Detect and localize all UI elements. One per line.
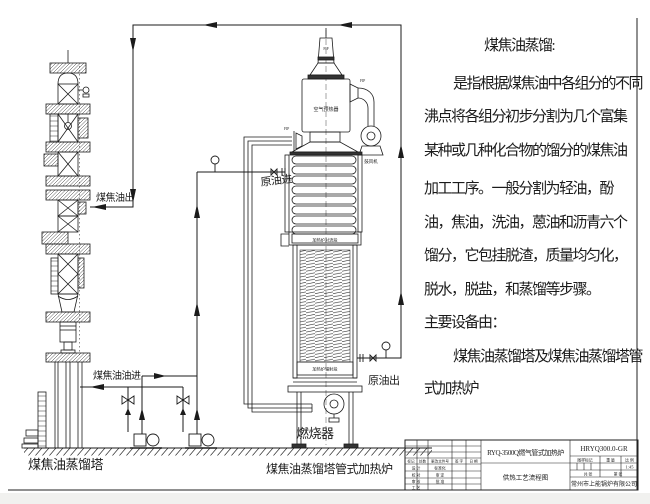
- description-line: 式加热炉: [424, 380, 479, 397]
- description-line: 馏分，它包挂脱渣，质量均匀化，: [424, 246, 627, 264]
- pump-2: [185, 434, 217, 448]
- tower-ladder: [38, 392, 46, 448]
- description-title: 煤焦油蒸馏:: [484, 37, 555, 54]
- tb-verify: 审 定: [436, 473, 445, 478]
- tar-pumps: [130, 434, 217, 448]
- tb-standard: 标准化: [434, 466, 446, 471]
- pressure-gauge-icon: [382, 342, 390, 350]
- coal-tar-in-label: 煤焦油油进: [93, 369, 141, 382]
- tower-name-label: 煤焦油蒸馏塔: [28, 457, 104, 472]
- burner-assembly: [324, 394, 344, 422]
- tb-weight-header: 重 量: [606, 457, 615, 462]
- tb-check: 校 对: [412, 473, 421, 478]
- coal-tar-out-label: 煤焦油出: [96, 191, 134, 204]
- ground-line: [24, 448, 432, 456]
- tb-sheet-name: 供热工艺流程图: [503, 473, 549, 482]
- description-line: 脱水，脱盐，和蒸馏等步骤。: [424, 280, 600, 298]
- tb-rev-sign: 签 字: [455, 459, 463, 464]
- tb-company-name: 常州市上能锅炉有限公司: [571, 480, 637, 488]
- process-flow-diagram: 煤焦油出 煤焦油油进 原油进 原油出 燃烧器 煤焦油蒸馏塔 煤焦油蒸馏塔管式加热…: [0, 0, 650, 504]
- instrument-tag: FIP: [323, 47, 328, 51]
- distillation-tower: [22, 50, 90, 448]
- tb-sheet-number: 第 张: [614, 471, 623, 476]
- description-line: 煤焦油蒸馏塔及煤焦油蒸馏塔管: [453, 348, 644, 365]
- blower: [359, 126, 383, 155]
- convection-band-label: 加热炉对流段: [312, 237, 338, 244]
- description-line: 是指根据煤焦油中各组分的不同: [453, 75, 643, 92]
- convection-section: [285, 155, 362, 234]
- furnace-name-label: 煤焦油蒸馏塔管式加热炉: [266, 461, 393, 476]
- tb-rev-date: 日 期: [469, 459, 477, 464]
- tb-scale-header: 比 例: [625, 457, 634, 462]
- tower-skirt-legs: [55, 362, 82, 448]
- tb-approve: 批 准: [436, 479, 445, 484]
- page-bottom-margin: [0, 493, 650, 504]
- tb-stamp-header: 图样标记: [577, 457, 592, 462]
- tb-rev-doc: 更改文件号: [431, 459, 449, 464]
- blower-label: 鼓风机: [364, 158, 378, 165]
- burner-label: 燃烧器: [296, 426, 334, 441]
- description-line: 某种或几种化合物的馏分的煤焦油: [424, 142, 627, 159]
- pressure-gauge-icon: [211, 156, 219, 164]
- tb-rev-mark: 标记: [407, 459, 415, 464]
- tb-scale-value: 1:45: [625, 464, 634, 469]
- tb-review: 审 核: [412, 479, 421, 484]
- drawing-page: { "description": { "title": "煤焦油蒸馏:", "l…: [0, 0, 650, 504]
- instrument-tag: FIP: [284, 127, 289, 131]
- tb-process: 工 艺: [412, 485, 421, 490]
- tb-drawing-no: HRYQ300.0-GR: [580, 445, 628, 453]
- instrument-tag: FIP: [360, 79, 365, 83]
- description-line: 加工工序。一般分割为轻油，酚: [424, 180, 615, 197]
- radiant-band-label: 加热炉辐射段: [312, 366, 338, 373]
- description-line: 油，焦油，洗油，蒽油和沥青六个: [424, 214, 628, 231]
- description-block: 煤焦油蒸馏: 是指根据煤焦油中各组分的不同 沸点将各组分初步分割为几个富集 某种…: [424, 37, 644, 397]
- tb-sheets-total: 共 张: [584, 471, 593, 476]
- crude-oil-out-label: 原油出: [368, 373, 400, 387]
- tb-rev-count: 处数: [419, 459, 427, 464]
- air-preheater-label: 空气预热器: [313, 106, 338, 113]
- tb-design: 设 计: [412, 466, 421, 471]
- tb-product-name: RYQ-3500Q燃气管式加热炉: [487, 448, 564, 457]
- description-line: 沸点将各组分初步分割为几个富集: [424, 107, 628, 125]
- radiant-section: [293, 245, 357, 382]
- description-line: 主要设备由：: [424, 314, 505, 331]
- pump-1: [130, 434, 162, 448]
